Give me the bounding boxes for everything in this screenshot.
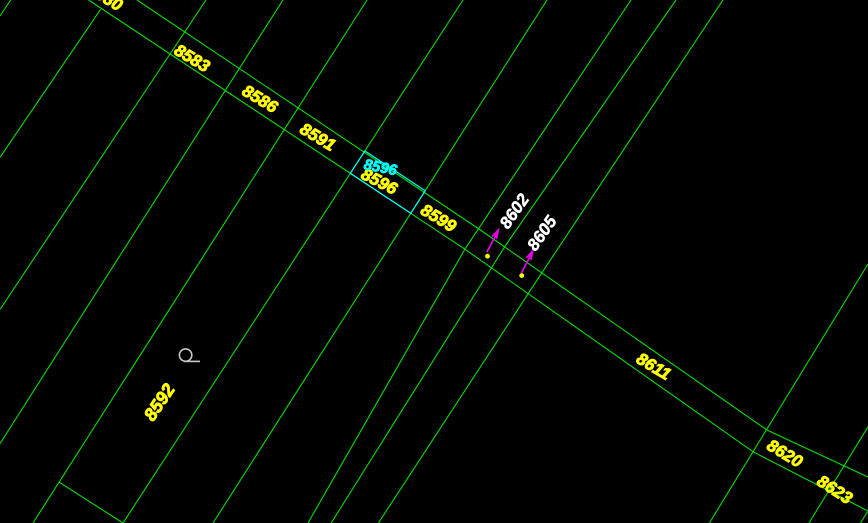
svg-text:8591: 8591 <box>297 119 339 155</box>
svg-text:8605: 8605 <box>523 212 561 254</box>
svg-text:8623: 8623 <box>814 471 857 508</box>
svg-text:8580: 8580 <box>84 0 127 15</box>
svg-text:8586: 8586 <box>239 81 282 117</box>
svg-text:8583: 8583 <box>171 40 214 76</box>
svg-text:8620: 8620 <box>764 436 807 472</box>
svg-text:8611: 8611 <box>633 349 674 384</box>
svg-text:8592: 8592 <box>140 380 179 424</box>
svg-text:8599: 8599 <box>417 200 460 236</box>
svg-text:8602: 8602 <box>496 190 534 232</box>
